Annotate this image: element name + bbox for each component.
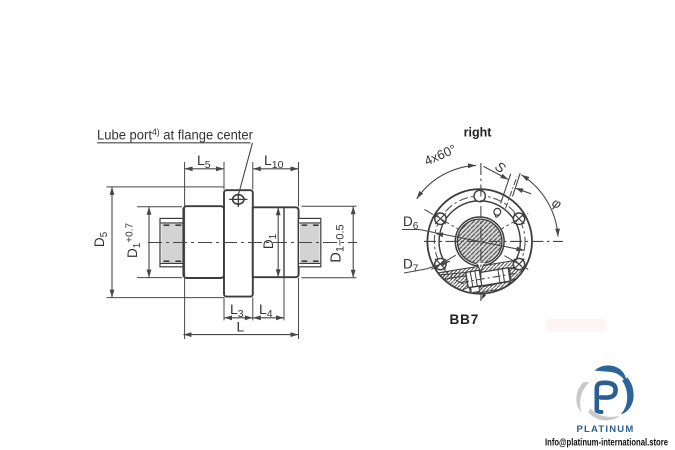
svg-text:L4: L4 bbox=[259, 301, 273, 320]
svg-text:S: S bbox=[492, 159, 508, 176]
svg-text:Lube port4) at flange center: Lube port4) at flange center bbox=[97, 127, 253, 143]
svg-text:PLATINUM: PLATINUM bbox=[577, 424, 635, 435]
svg-text:L10: L10 bbox=[264, 152, 284, 171]
svg-text:L5: L5 bbox=[197, 152, 211, 171]
svg-text:BB7: BB7 bbox=[450, 312, 480, 327]
svg-text:right: right bbox=[464, 125, 493, 139]
svg-text:L: L bbox=[237, 319, 245, 335]
svg-text:D1+0.7: D1+0.7 bbox=[125, 223, 144, 258]
svg-text:D1−0.5: D1−0.5 bbox=[329, 224, 347, 262]
svg-text:D5: D5 bbox=[92, 231, 110, 247]
svg-text:4x60°: 4x60° bbox=[422, 141, 459, 168]
svg-text:Info@platinum-international.st: Info@platinum-international.store bbox=[545, 437, 668, 449]
svg-text:L3: L3 bbox=[230, 301, 244, 320]
